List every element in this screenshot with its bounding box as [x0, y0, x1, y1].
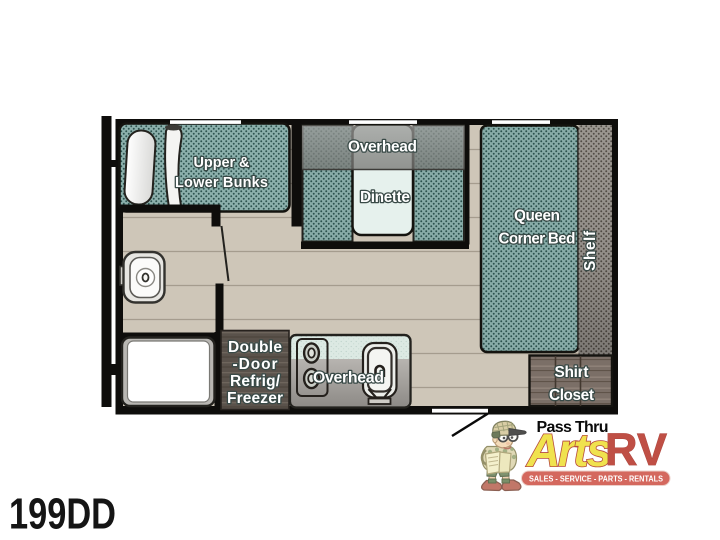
svg-text:Shirt: Shirt — [555, 364, 589, 381]
svg-text:Lower Bunks: Lower Bunks — [175, 175, 268, 191]
svg-text:Corner Bed: Corner Bed — [499, 231, 576, 248]
svg-text:Overhead: Overhead — [313, 370, 384, 387]
svg-text:-Door: -Door — [233, 356, 278, 373]
svg-text:199DD: 199DD — [9, 490, 116, 539]
svg-text:Dinette: Dinette — [360, 189, 410, 206]
svg-text:Shelf: Shelf — [582, 230, 599, 271]
svg-text:SALES - SERVICE - PARTS - RENT: SALES - SERVICE - PARTS - RENTALS — [529, 474, 663, 484]
svg-text:Freezer: Freezer — [227, 390, 283, 407]
svg-text:Arts: Arts — [526, 424, 611, 476]
svg-text:Upper &: Upper & — [194, 155, 251, 171]
svg-text:Overhead: Overhead — [348, 139, 417, 156]
svg-text:Queen: Queen — [514, 208, 560, 225]
svg-text:Closet: Closet — [549, 387, 594, 404]
svg-text:Refrig/: Refrig/ — [230, 373, 281, 390]
svg-text:Double: Double — [228, 339, 282, 356]
